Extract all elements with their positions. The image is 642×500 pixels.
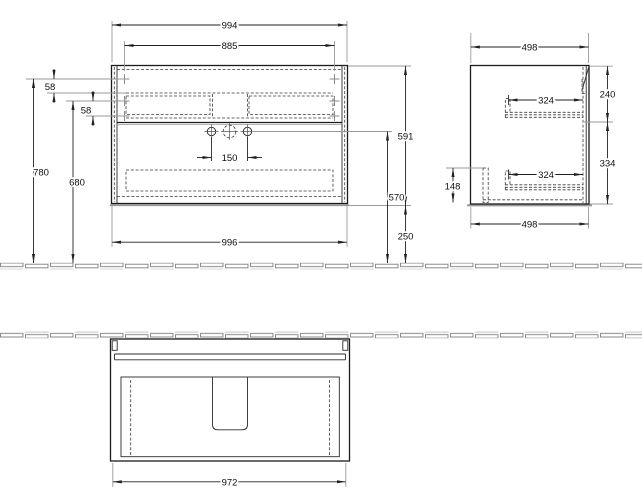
dim-front-tap-height: 570 <box>389 193 405 204</box>
dim-front-tap-spacing: 150 <box>222 153 238 164</box>
front-view: 994 885 996 58 58 780 680 150 570 591 25… <box>26 21 413 264</box>
plan-carcass <box>111 339 350 461</box>
dim-front-hole-offset-lower: 58 <box>81 106 92 117</box>
dim-side-depth-top: 498 <box>522 43 538 54</box>
dim-plan-carcass-width: 972 <box>222 477 238 488</box>
dim-front-body-height: 591 <box>398 132 414 143</box>
bottom-view: 972 <box>111 339 350 488</box>
dim-side-recess-height: 148 <box>445 182 461 193</box>
dim-front-mount-height-upper: 780 <box>33 168 49 179</box>
plan-drawer-box <box>121 377 339 457</box>
plan-corner-right <box>343 341 348 351</box>
front-lower-slot <box>126 170 333 191</box>
dim-front-carcass-width: 996 <box>222 238 238 249</box>
siphon-recess <box>483 168 488 203</box>
technical-drawing-canvas: 994 885 996 58 58 780 680 150 570 591 25… <box>0 0 642 500</box>
tap-holes <box>205 123 255 140</box>
plan-corner-left <box>112 341 117 351</box>
plan-back-rail <box>115 354 346 360</box>
vanity-dimension-drawing: 994 885 996 58 58 780 680 150 570 591 25… <box>0 0 642 500</box>
dim-side-section-lower: 334 <box>600 159 616 170</box>
dim-side-runner-upper: 324 <box>538 96 554 107</box>
floor-tile-strip <box>0 263 642 269</box>
front-panel-flag <box>582 68 589 94</box>
front-upper-slot-right <box>249 96 333 115</box>
dim-side-depth-bottom: 498 <box>522 220 538 231</box>
dim-front-hole-offset-upper: 58 <box>45 82 56 93</box>
wall-tile-strip <box>0 332 642 338</box>
side-view: 498 498 324 324 240 334 148 <box>445 33 616 231</box>
dim-front-mounting-width: 885 <box>222 41 238 52</box>
dim-front-overall-width: 994 <box>222 21 238 32</box>
dim-side-runner-lower: 324 <box>538 170 554 181</box>
dim-front-floor-clearance: 250 <box>398 232 414 243</box>
plan-siphon-cutout <box>213 377 248 430</box>
dim-side-section-upper: 240 <box>600 90 616 101</box>
front-upper-slot-left <box>126 96 210 115</box>
dim-front-mount-height-lower: 680 <box>69 178 85 189</box>
mounting-hole-markers <box>120 74 340 121</box>
